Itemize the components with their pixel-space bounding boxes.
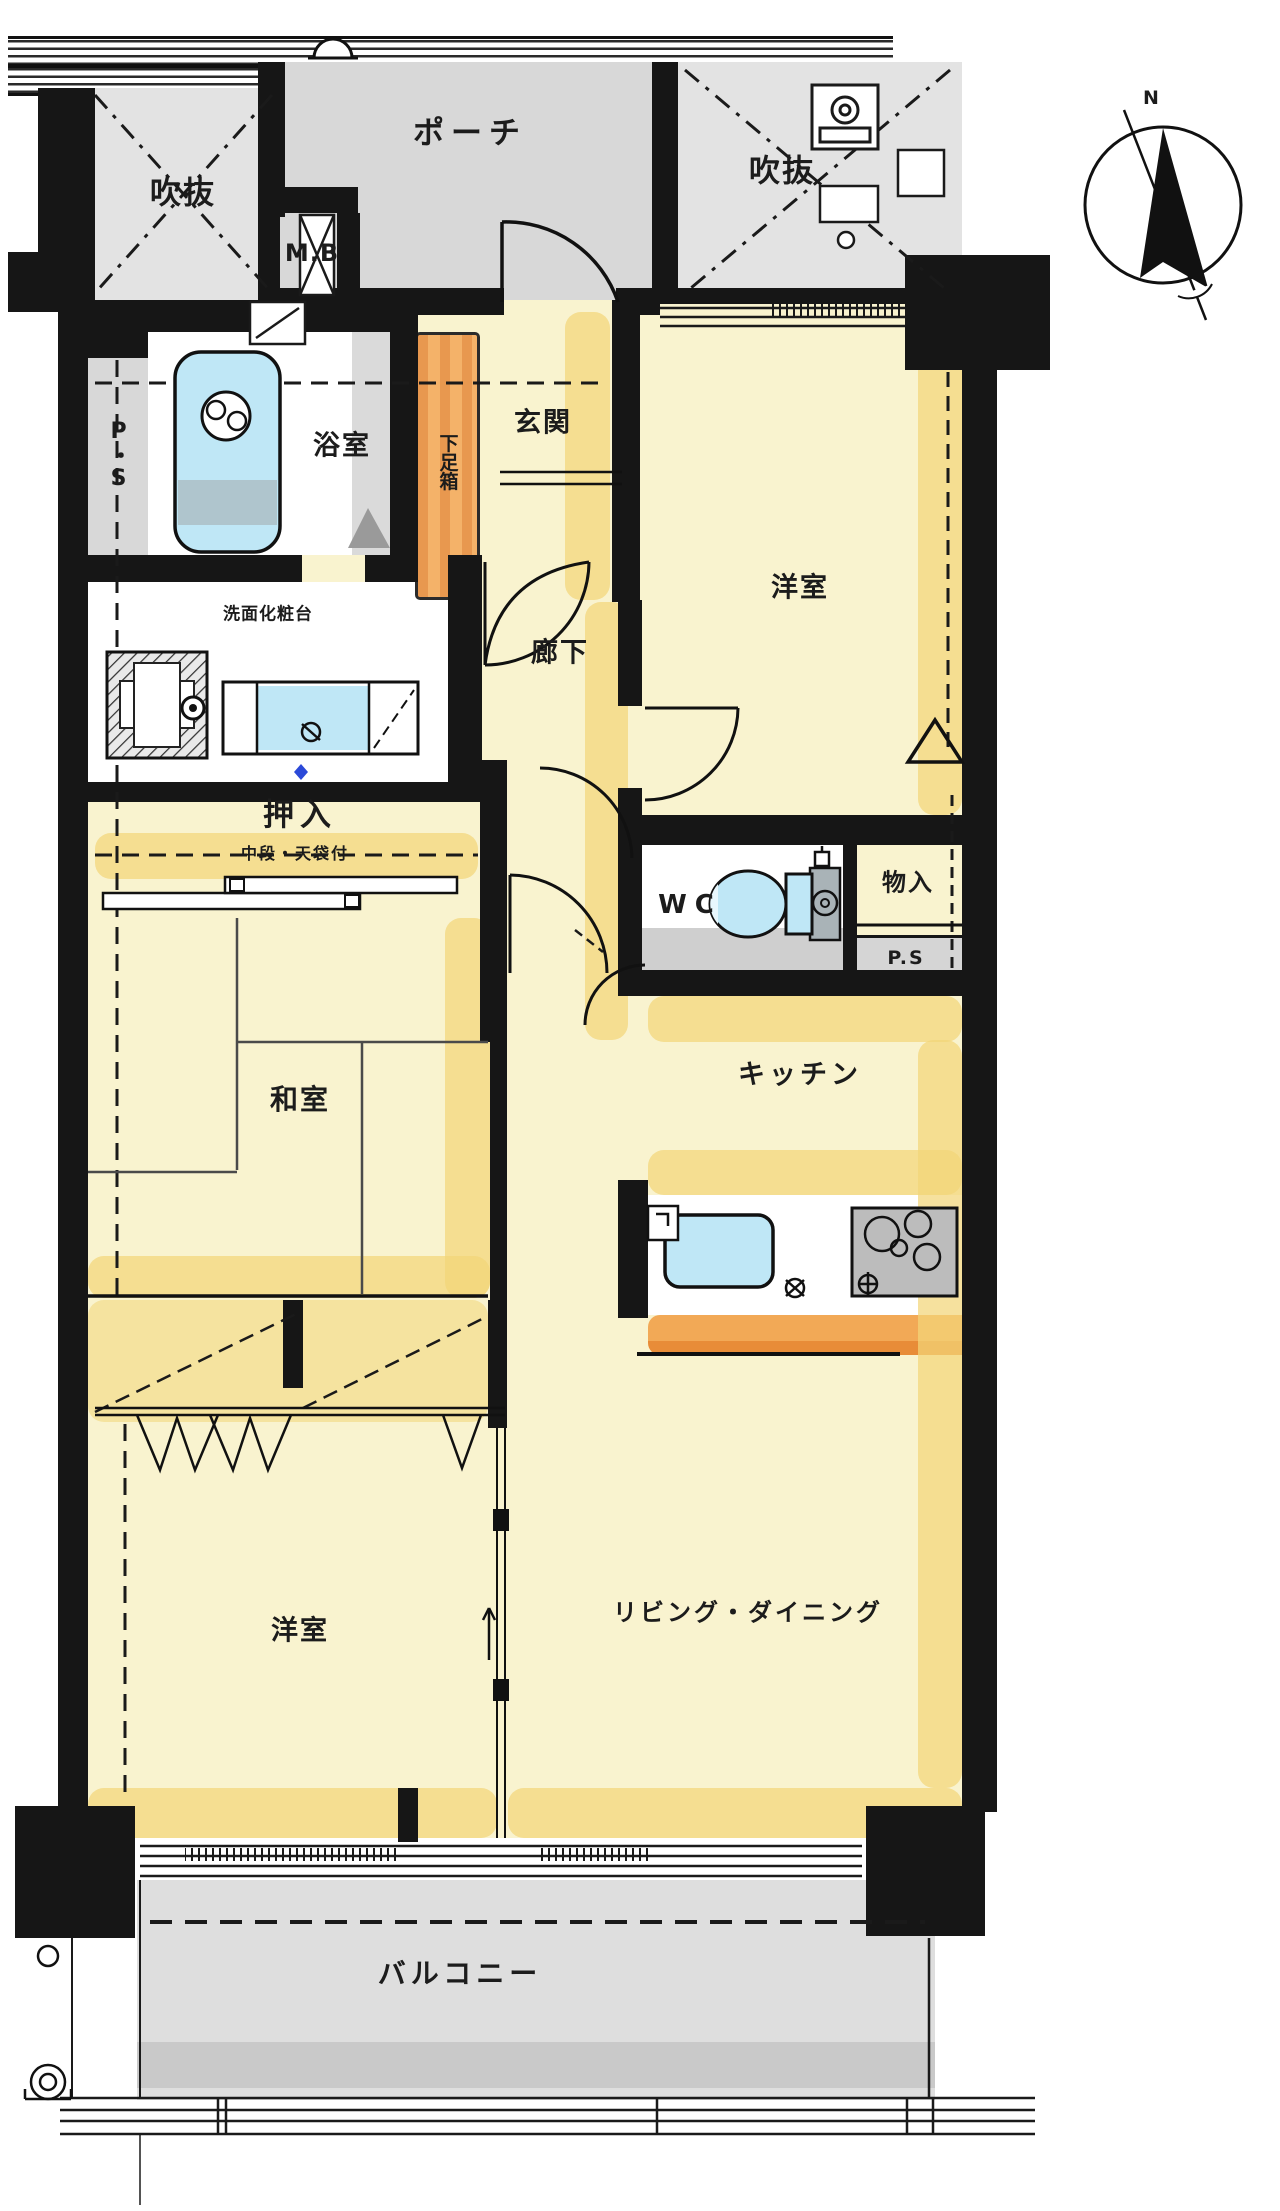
accent-ld-right xyxy=(918,1040,962,1788)
wall xyxy=(652,62,678,300)
column-top-right xyxy=(905,255,1050,370)
wall xyxy=(448,555,482,802)
wall xyxy=(365,555,418,582)
balcony-edge-shade xyxy=(137,2042,935,2088)
accent-bedroom-upper xyxy=(918,332,962,815)
wall xyxy=(618,1180,648,1318)
wall xyxy=(660,288,910,304)
label-entrance: 玄関 xyxy=(514,401,572,440)
accent-kitchen-counter xyxy=(648,1150,962,1195)
wall xyxy=(480,760,507,1042)
compass-icon xyxy=(1085,110,1241,320)
wall xyxy=(8,252,58,312)
kitchen-counter-area xyxy=(648,1195,962,1315)
kitchen-counter-front xyxy=(648,1315,962,1355)
wc-shade xyxy=(642,928,843,970)
wall xyxy=(618,845,642,972)
floor-plan: 吹抜 ポーチ M.B 吹抜 N P・S 浴室 下足箱 玄関 洋室 洗面化粧台 廊… xyxy=(0,0,1280,2211)
label-void-upper-right: 吹抜 xyxy=(749,146,815,191)
accent-genkan xyxy=(565,312,610,600)
label-bedroom-upper: 洋室 xyxy=(771,566,829,605)
column-bottom-left xyxy=(15,1806,135,1938)
wall-right-outer xyxy=(962,367,997,1812)
column-bottom-right xyxy=(866,1806,985,1936)
wall xyxy=(337,213,360,298)
label-porch: ポーチ xyxy=(413,108,527,153)
label-pipe-shaft-right: P.S xyxy=(887,947,924,969)
wall xyxy=(618,600,642,706)
label-pipe-shaft-left: P・S xyxy=(102,419,134,491)
wall xyxy=(488,1300,507,1428)
label-oshiire-note: 中段・天袋付 xyxy=(241,840,349,864)
accent-kitchen-top xyxy=(648,996,962,1042)
wall-left-outer xyxy=(58,215,88,1840)
label-balcony: バルコニー xyxy=(378,1952,542,1992)
label-japanese-room: 和室 xyxy=(270,1078,330,1118)
wall xyxy=(843,843,857,985)
label-vanity: 洗面化粧台 xyxy=(223,600,313,625)
accent-bedroom-lower-bottom xyxy=(88,1788,497,1838)
label-corridor: 廊下 xyxy=(531,631,589,670)
accent-washitsu-bottom xyxy=(88,1256,490,1298)
window-band xyxy=(88,1838,962,1880)
label-living-dining: リビング・ダイニング xyxy=(613,1593,883,1628)
label-shoe-cabinet: 下足箱 xyxy=(435,434,462,491)
wall xyxy=(283,1300,303,1388)
wall xyxy=(618,815,962,845)
label-oshiire: 押入 xyxy=(263,790,337,835)
label-kitchen: キッチン xyxy=(738,1053,862,1092)
wall xyxy=(490,1042,507,1300)
label-storage: 物入 xyxy=(882,863,934,898)
label-bathroom: 浴室 xyxy=(313,424,371,463)
drain-icon xyxy=(25,1946,71,2099)
window-post xyxy=(398,1788,418,1842)
wall xyxy=(88,332,148,358)
label-wc: WC xyxy=(658,890,722,920)
label-meter-box: M.B xyxy=(285,239,339,267)
wall xyxy=(278,187,358,213)
wall xyxy=(258,213,280,312)
wall xyxy=(88,555,302,582)
wall xyxy=(618,970,962,996)
label-void-upper-left: 吹抜 xyxy=(150,168,216,213)
wall xyxy=(612,300,640,602)
label-bedroom-lower: 洋室 xyxy=(271,1609,329,1648)
wall xyxy=(390,310,418,582)
label-compass-north: N xyxy=(1143,87,1161,109)
